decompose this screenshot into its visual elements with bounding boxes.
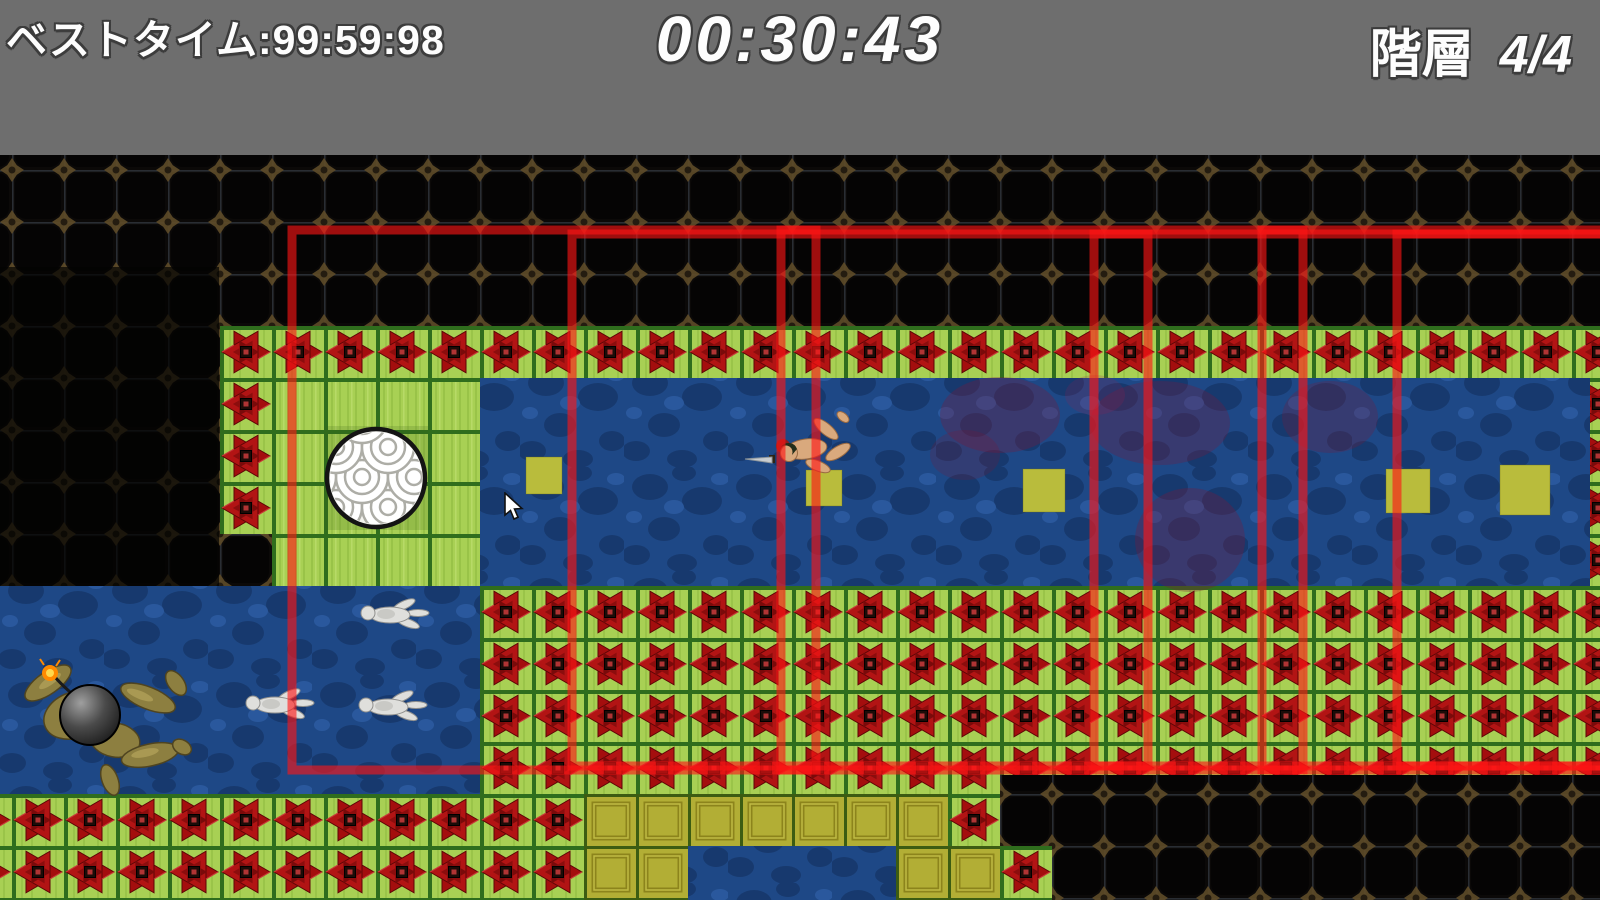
tiles-dark-bottom-right: [1000, 775, 1600, 900]
mouse-cursor-icon: [503, 492, 527, 527]
game-viewport[interactable]: [0, 155, 1600, 900]
item-square-5: [1500, 465, 1550, 515]
current-time: 00:30:43: [0, 2, 1600, 76]
floor-indicator: 階層4/4: [1370, 12, 1572, 87]
hud-bar: ベストタイム:99:59:98 00:30:43 階層4/4: [0, 0, 1600, 155]
tiles-yellow-boxes-bottom-left: [584, 846, 688, 900]
tiles-void-dark-left: [0, 267, 219, 605]
item-square-2: [806, 470, 842, 506]
tiles-right-edge-strip: [1590, 378, 1600, 586]
tiles-shuriken-bottom-left: [0, 794, 584, 900]
tiles-shuriken-left-column: [220, 378, 272, 534]
item-square-3: [1023, 469, 1065, 512]
floor-value: 4/4: [1500, 26, 1572, 84]
game-screen: ベストタイム:99:59:98 00:30:43 階層4/4: [0, 0, 1600, 900]
tiles-shuriken-single-a: [948, 794, 1000, 846]
tiles-water-bottom-channel: [688, 846, 896, 900]
tiles-yellow-boxes-bottom-right: [896, 846, 1000, 900]
game-canvas: [0, 155, 1600, 900]
item-square-1: [526, 457, 562, 494]
tiles-shuriken-single-b: [1000, 846, 1052, 900]
floor-label: 階層: [1370, 26, 1474, 84]
tiles-yellow-boxes-row: [584, 794, 948, 846]
